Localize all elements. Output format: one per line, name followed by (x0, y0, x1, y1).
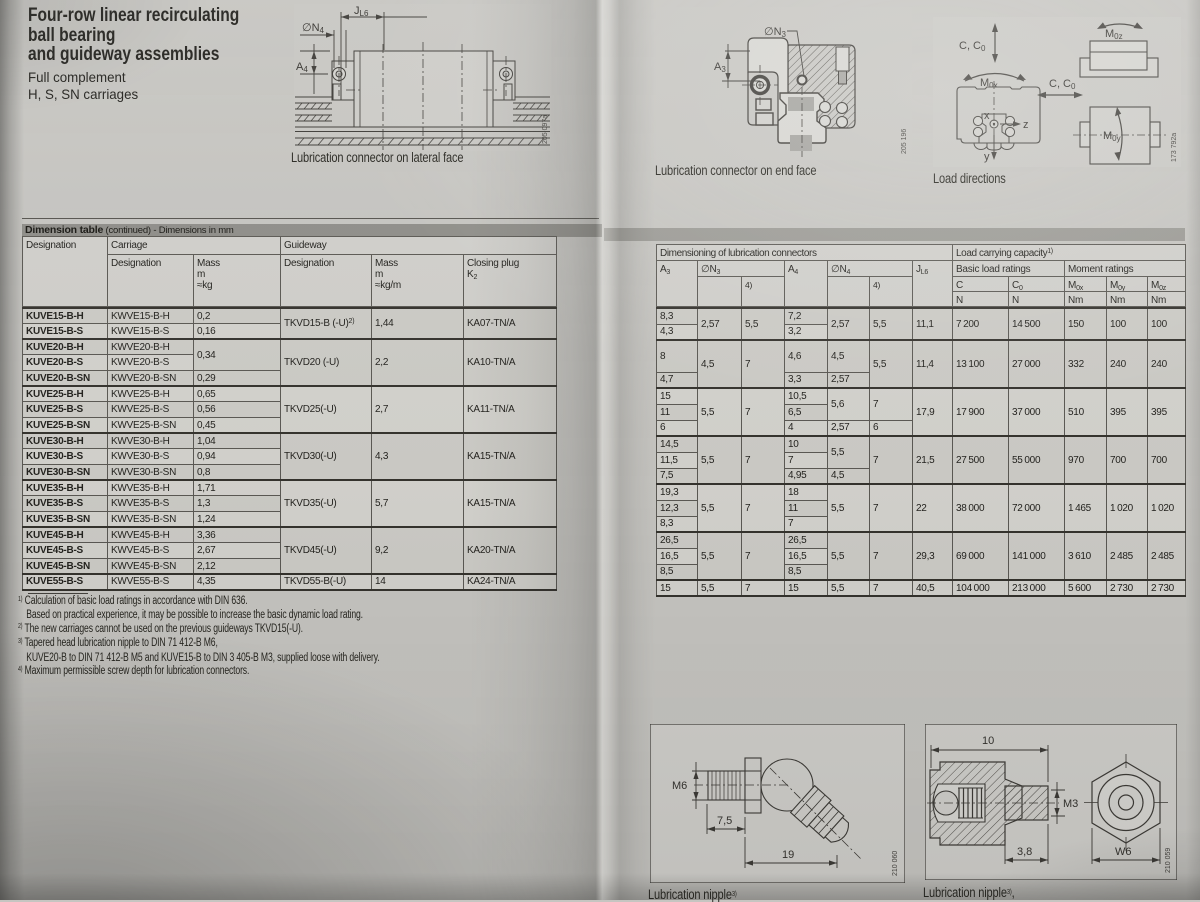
svg-text:z: z (1023, 119, 1029, 131)
svg-text:W6: W6 (1115, 846, 1132, 858)
svg-text:210 059: 210 059 (1165, 848, 1172, 873)
svg-text:M3: M3 (1063, 798, 1078, 810)
svg-text:10: 10 (982, 735, 994, 747)
svg-text:y: y (984, 151, 990, 163)
svg-text:205 196: 205 196 (901, 129, 908, 154)
svg-text:x: x (984, 110, 990, 122)
svg-text:3,8: 3,8 (1017, 846, 1032, 858)
svg-text:173 792a: 173 792a (1171, 133, 1178, 162)
svg-text:19: 19 (782, 849, 794, 861)
svg-text:205 097a: 205 097a (542, 115, 549, 144)
svg-text:M6: M6 (672, 780, 687, 792)
svg-text:210 060: 210 060 (892, 851, 899, 876)
svg-text:7,5: 7,5 (717, 815, 732, 827)
